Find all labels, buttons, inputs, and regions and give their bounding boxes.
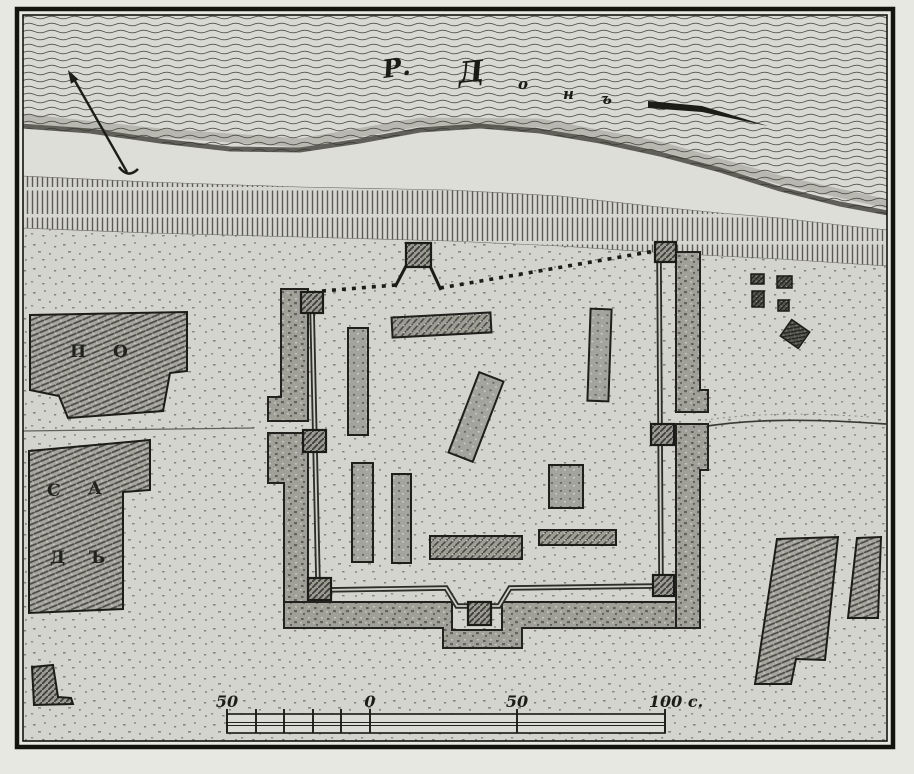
posad-letter-d: Д (50, 548, 66, 568)
building-west-row (348, 328, 368, 435)
posad-letter-s: С (47, 481, 62, 501)
building-north-hall (392, 312, 492, 337)
building-southwest-row-2 (392, 474, 411, 563)
posad-letter-a: А (88, 479, 103, 499)
building-south-hall (430, 536, 522, 559)
scale-label-left-50: 50 (216, 692, 238, 711)
river-label-hard-sign: ъ (601, 90, 612, 108)
posad-letter-hard-sign: Ъ (89, 548, 106, 568)
tower-northwest (301, 292, 323, 313)
tower-west (303, 430, 326, 452)
building-southwest-row-1 (352, 463, 373, 562)
tower-south-gate (468, 602, 491, 625)
river-label-d: Д (454, 53, 486, 90)
fortress-plan-map: Р. Д о н ъ П О С А Д Ъ (0, 0, 914, 774)
river-label-r: Р. (380, 51, 412, 84)
river-label-n: н (563, 85, 574, 103)
scale-label-zero: 0 (364, 692, 375, 711)
tower-northeast (655, 242, 676, 262)
tower-east (651, 424, 674, 445)
map-canvas: Р. Д о н ъ П О С А Д Ъ (0, 0, 914, 774)
tower-southeast (653, 575, 674, 596)
river-label-o: о (518, 75, 528, 93)
building-southeast-bar (539, 530, 616, 545)
building-east-row (587, 309, 611, 402)
building-east-square (549, 465, 583, 508)
tower-southwest (308, 578, 331, 600)
posad-letter-o: О (113, 342, 129, 362)
scale-label-right-50: 50 (506, 692, 528, 711)
tower-north-detached (406, 243, 431, 267)
posad-letter-p: П (70, 342, 87, 362)
scale-label-100-sazhen: 100 с. (649, 692, 703, 711)
